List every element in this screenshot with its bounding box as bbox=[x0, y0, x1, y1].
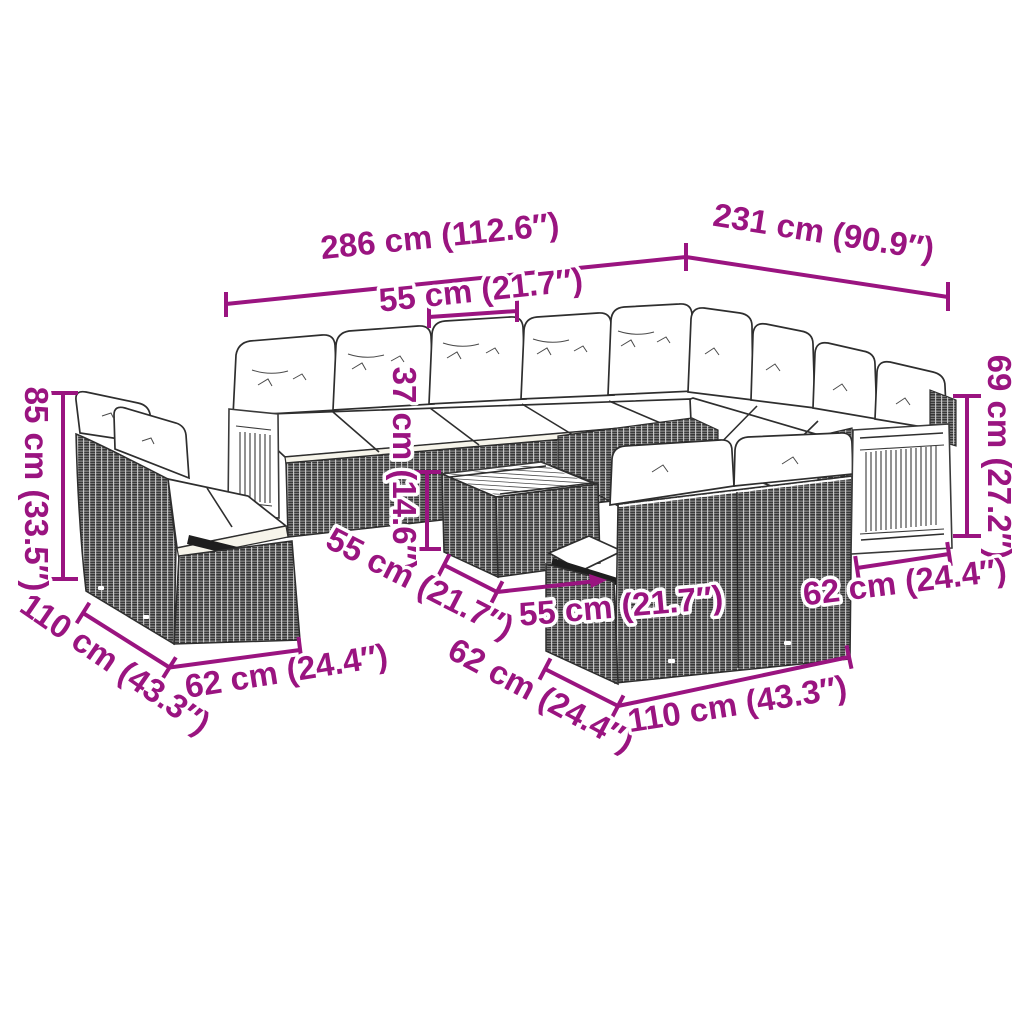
svg-text:69 cm (27.2″): 69 cm (27.2″) bbox=[981, 355, 1018, 560]
svg-text:37 cm (14.6″): 37 cm (14.6″) bbox=[386, 367, 423, 572]
svg-text:85 cm (33.5″): 85 cm (33.5″) bbox=[18, 387, 55, 592]
